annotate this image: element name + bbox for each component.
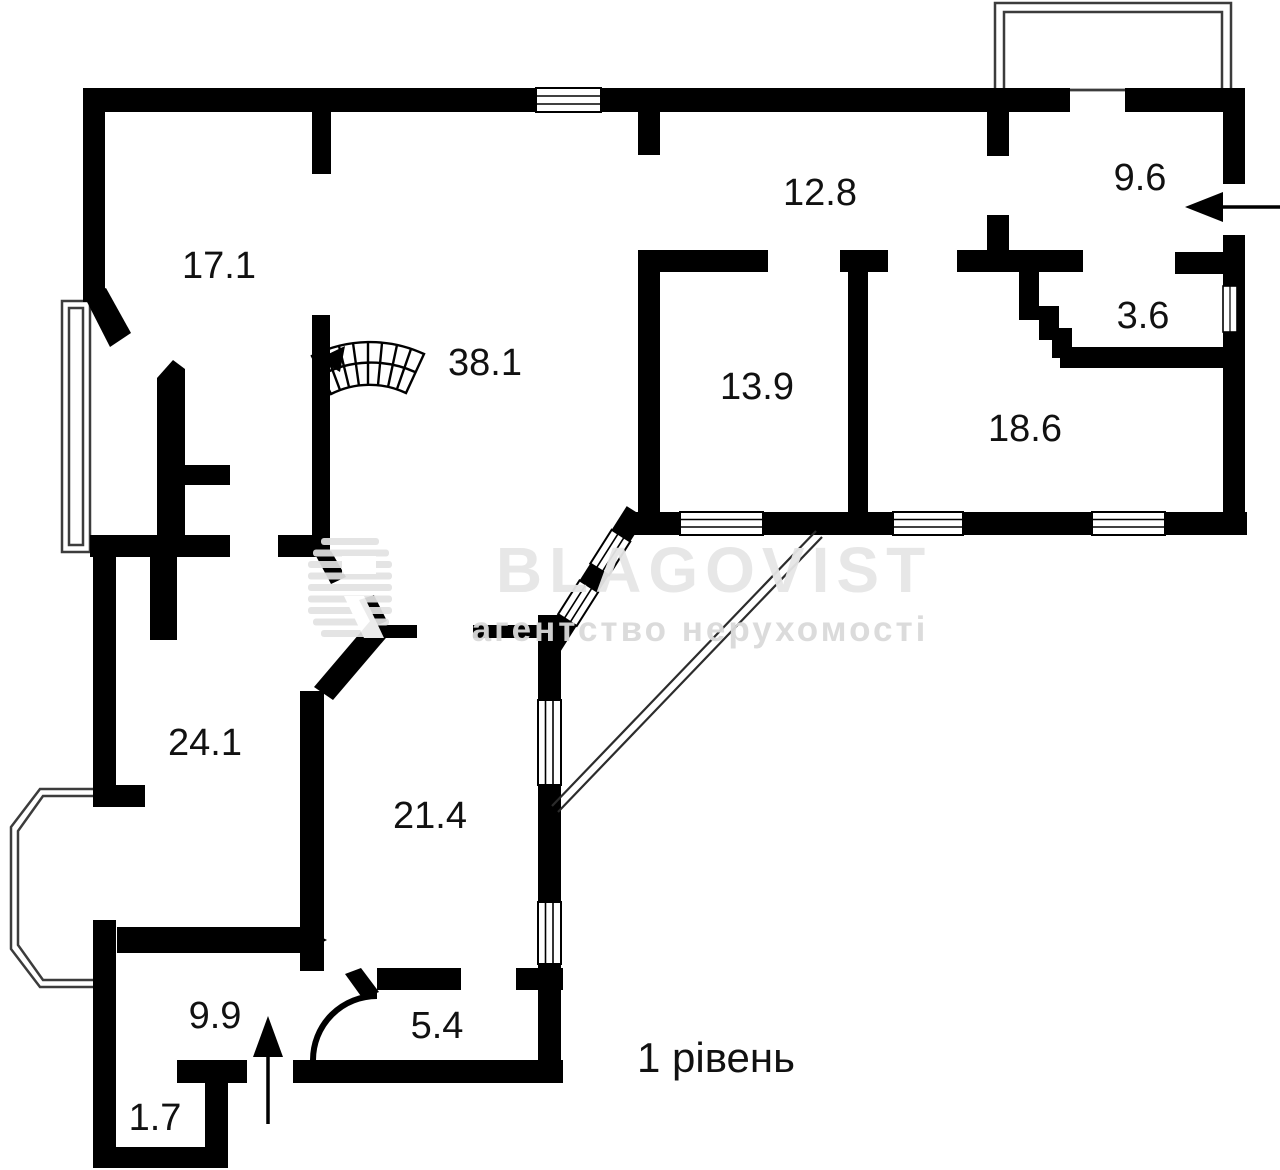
room-label-13-9: 13.9 xyxy=(720,366,794,408)
window-icon xyxy=(680,512,763,535)
room-label-21-4: 21.4 xyxy=(393,795,467,837)
window-icon xyxy=(893,512,963,535)
watermark-subtitle: агентство нерухомості xyxy=(472,610,929,649)
room-label-24-1: 24.1 xyxy=(168,722,242,764)
room-label-17-1: 17.1 xyxy=(182,245,256,287)
room-label-12-8: 12.8 xyxy=(783,172,857,214)
room-label-18-6: 18.6 xyxy=(988,408,1062,450)
watermark-brand: BLAGOVIST xyxy=(496,534,932,606)
window-icon xyxy=(536,88,601,112)
balcony-outline xyxy=(995,3,1231,90)
floor-plan-canvas: BLAGOVIST агентство нерухомості 17.1 38.… xyxy=(0,0,1280,1170)
entrance-arrow-up-icon xyxy=(253,1016,283,1124)
room-label-9-6: 9.6 xyxy=(1114,157,1167,199)
entrance-arrow-left-icon xyxy=(1185,192,1280,222)
room-label-3-6: 3.6 xyxy=(1117,295,1170,337)
window-icon xyxy=(1223,286,1237,332)
floor-plan-page: BLAGOVIST агентство нерухомості 17.1 38.… xyxy=(0,0,1280,1170)
room-label-38-1: 38.1 xyxy=(448,342,522,384)
bay-window-octagon-icon xyxy=(11,789,93,987)
room-label-9-9: 9.9 xyxy=(189,995,242,1037)
room-label-1-7: 1.7 xyxy=(129,1097,182,1139)
level-label: 1 рівень xyxy=(637,1034,795,1081)
bay-window-left-icon xyxy=(62,301,90,552)
door-swing-icon xyxy=(313,996,377,1060)
door-leaf-icon xyxy=(316,551,387,999)
window-icon xyxy=(1092,512,1165,535)
room-label-5-4: 5.4 xyxy=(411,1005,464,1047)
window-icon xyxy=(538,700,561,785)
blagovist-logo-icon xyxy=(308,538,392,638)
window-icon xyxy=(538,902,561,964)
